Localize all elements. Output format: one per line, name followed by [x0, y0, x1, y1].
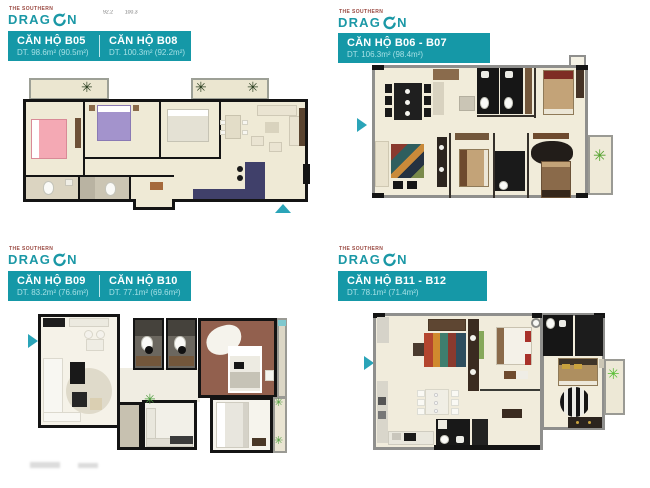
- chair: [96, 330, 105, 339]
- bench: [504, 371, 528, 379]
- plant-icon: ✳: [274, 398, 283, 409]
- wall: [303, 164, 310, 184]
- floor-plan-b06-b07: ✳: [371, 55, 614, 200]
- rug: [424, 333, 466, 367]
- appliance: [378, 411, 386, 419]
- dragon-o-icon: [52, 13, 66, 27]
- bench: [502, 409, 522, 418]
- plant-icon: ✳: [144, 392, 156, 406]
- wall: [477, 115, 535, 117]
- sofa: [428, 319, 466, 331]
- unit-name: CĂN HỘ B09: [17, 275, 99, 287]
- chair: [265, 370, 274, 381]
- brand-logo: THE SOUTHERN DRAG N: [338, 10, 408, 29]
- unit-band-b05-b08: CĂN HỘ B05 DT. 98.6m² (90.5m²) CĂN HỘ B0…: [8, 31, 191, 61]
- floor-plan-b11-b12: ✳: [372, 311, 626, 453]
- wall: [129, 177, 131, 199]
- toilet: [480, 97, 489, 109]
- pendant-light: [405, 100, 410, 105]
- unit-name: CĂN HỘ B05: [17, 35, 99, 47]
- stool: [237, 175, 243, 181]
- lamp: [470, 335, 476, 341]
- dining-chair: [424, 84, 431, 93]
- side-table: [393, 181, 403, 189]
- pendant-light: [434, 409, 438, 413]
- brand-word: DRAG N: [338, 253, 408, 266]
- toilet: [499, 181, 508, 190]
- sink: [559, 320, 566, 327]
- vanity: [169, 356, 194, 366]
- vanity: [136, 356, 161, 366]
- bed: [541, 161, 571, 198]
- plant-icon: ✳: [593, 149, 606, 165]
- mirror: [531, 318, 541, 328]
- unit-cell-b09: CĂN HỘ B09 DT. 83.2m² (76.6m²): [8, 271, 99, 301]
- balcony: [588, 135, 613, 195]
- kitchen-counter: [433, 82, 444, 115]
- pouf: [72, 392, 87, 407]
- dining-chair: [385, 96, 392, 105]
- bathroom: [575, 315, 603, 356]
- dining-chair: [242, 120, 248, 125]
- up-arrow-icon: [275, 204, 291, 213]
- shower: [168, 320, 195, 336]
- dragon-o-icon: [52, 253, 66, 267]
- appliance: [378, 397, 386, 405]
- armchair: [251, 136, 264, 146]
- pendant-light: [434, 401, 438, 405]
- cabinet: [69, 318, 109, 327]
- pillow: [562, 364, 570, 369]
- brand-logo: THE SOUTHERN DRAG N: [8, 247, 78, 266]
- nightstand: [133, 105, 139, 111]
- zebra-rug: [560, 387, 590, 417]
- pillow: [525, 354, 531, 365]
- dining-chair: [385, 108, 392, 117]
- pendant-light: [434, 393, 438, 397]
- kitchen-counter: [43, 318, 65, 327]
- bed: [558, 358, 598, 386]
- appliance: [170, 436, 193, 444]
- wall: [534, 68, 536, 118]
- unit-cell-b11-b12: CĂN HỘ B11 - B12 DT. 78.1m² (71.4m²): [338, 271, 487, 301]
- brand-word: DRAG N: [338, 16, 408, 29]
- toilet: [43, 181, 54, 195]
- dining-table: [225, 115, 241, 139]
- pillow: [574, 364, 582, 369]
- dining-chair: [242, 130, 248, 135]
- dining-chair: [451, 408, 459, 415]
- utility-room: [117, 402, 142, 450]
- plant-icon: ✳: [81, 80, 93, 94]
- rug: [391, 144, 424, 178]
- unit-area: DT. 78.1m² (71.4m²): [347, 288, 487, 297]
- unit-band-b11-b12: CĂN HỘ B11 - B12 DT. 78.1m² (71.4m²): [338, 271, 487, 301]
- handle: [576, 421, 579, 424]
- wall: [83, 102, 85, 176]
- unit-name: CĂN HỘ B11 - B12: [347, 275, 487, 287]
- unit-name: CĂN HỘ B08: [109, 35, 191, 47]
- tiny-dimension-note: 92.2100.3: [103, 10, 149, 15]
- pillow: [525, 331, 531, 342]
- dining-chair: [417, 390, 425, 397]
- armchair: [413, 343, 424, 356]
- dragon-o-icon: [382, 253, 396, 267]
- dragon-o-icon: [382, 16, 396, 30]
- pendant-light: [405, 89, 410, 94]
- nightstand: [599, 359, 604, 368]
- kitchen-island: [459, 96, 475, 111]
- bed: [97, 105, 131, 141]
- handle: [588, 421, 591, 424]
- wall: [372, 65, 384, 70]
- tiny-note-right: 100.3: [125, 10, 138, 15]
- brand-word-start: DRAG: [8, 13, 51, 26]
- unit-name: CĂN HỘ B06 - B07: [347, 37, 490, 49]
- balcony: [29, 78, 109, 100]
- nightstand: [89, 105, 95, 111]
- wardrobe: [455, 133, 489, 140]
- sofa: [43, 412, 81, 422]
- cooktop: [404, 433, 416, 441]
- brand-word-end: N: [67, 13, 78, 26]
- sink: [456, 436, 464, 443]
- bathroom: [472, 419, 488, 445]
- closet: [525, 68, 532, 114]
- stool: [178, 346, 186, 354]
- bed: [543, 70, 574, 115]
- dining-chair: [417, 408, 425, 415]
- unit-cell-b08: CĂN HỘ B08 DT. 100.3m² (92.2m²): [100, 31, 191, 61]
- unit-area: DT. 100.3m² (92.2m²): [109, 48, 191, 57]
- toilet: [440, 435, 449, 444]
- sink: [65, 179, 73, 186]
- plant-icon: ✳: [195, 80, 207, 94]
- dining-chair: [451, 399, 459, 406]
- wall: [449, 133, 451, 198]
- plant-icon: ✳: [274, 436, 283, 447]
- bed: [228, 346, 262, 393]
- entrance: [133, 199, 175, 210]
- pendant-light: [405, 111, 410, 116]
- pouf: [90, 398, 102, 410]
- chair: [84, 330, 93, 339]
- laptop: [234, 362, 244, 369]
- wall: [480, 389, 540, 391]
- floor-plan-b09-b10: ✳ ✳ ✳: [36, 312, 288, 458]
- dining-chair: [385, 84, 392, 93]
- right-arrow-icon: [357, 118, 367, 132]
- bed: [216, 402, 249, 448]
- unit-area: DT. 83.2m² (76.6m²): [17, 288, 99, 297]
- brand-word-end: N: [67, 253, 78, 266]
- kitchen-counter: [245, 162, 265, 191]
- brand-word: DRAG N: [8, 253, 78, 266]
- faint-note: [30, 462, 60, 468]
- coffee-table: [265, 122, 279, 133]
- side-table: [407, 181, 417, 189]
- dining-chair: [451, 390, 459, 397]
- lamp: [439, 167, 444, 172]
- bed: [31, 119, 67, 159]
- wardrobe: [568, 417, 602, 428]
- shoe-cabinet: [150, 182, 163, 190]
- lamp: [439, 145, 444, 150]
- unit-area: DT. 98.6m² (90.5m²): [17, 48, 99, 57]
- table: [86, 339, 104, 351]
- shelf: [479, 331, 484, 359]
- sink: [505, 71, 513, 78]
- tv-cabinet: [299, 108, 305, 146]
- kitchen-counter: [146, 408, 156, 442]
- unit-cell-b10: CĂN HỘ B10 DT. 77.1m² (69.6m²): [100, 271, 191, 301]
- tiny-note-left: 92.2: [103, 10, 113, 15]
- tv-wall: [468, 319, 479, 391]
- unit-band-b09-b10: CĂN HỘ B09 DT. 83.2m² (76.6m²) CĂN HỘ B1…: [8, 271, 191, 301]
- brand-logo: THE SOUTHERN DRAG N: [338, 247, 408, 266]
- unit-area: DT. 77.1m² (69.6m²): [109, 288, 191, 297]
- plant-icon: ✳: [247, 80, 259, 94]
- shower: [135, 320, 162, 336]
- sofa: [257, 105, 297, 116]
- wall: [372, 193, 384, 198]
- wall: [576, 193, 588, 198]
- stool: [145, 346, 153, 354]
- wall: [527, 133, 529, 198]
- wall: [159, 102, 161, 158]
- dining-chair: [424, 108, 431, 117]
- wall: [83, 157, 221, 159]
- kitchen-cabinet: [433, 69, 459, 80]
- dresser: [533, 133, 569, 139]
- coffee-table: [70, 362, 85, 384]
- plant-icon: ✳: [607, 367, 620, 382]
- wardrobe: [576, 70, 584, 98]
- ac-unit: [278, 320, 286, 326]
- wardrobe: [75, 118, 81, 148]
- sink: [481, 71, 489, 78]
- armchair: [269, 142, 282, 152]
- toilet: [546, 318, 555, 329]
- wall: [434, 445, 540, 450]
- door-swing: [438, 420, 447, 429]
- kitchen-counter: [193, 189, 265, 199]
- toilet: [105, 182, 116, 196]
- cabinet: [377, 317, 389, 343]
- brand-word-end: N: [397, 16, 408, 29]
- toilet: [504, 97, 513, 109]
- bench: [252, 438, 266, 446]
- unit-name: CĂN HỘ B10: [109, 275, 191, 287]
- bed: [459, 149, 489, 187]
- sofa: [43, 358, 63, 416]
- dining-chair: [424, 96, 431, 105]
- bed: [167, 109, 209, 142]
- shower: [80, 177, 95, 199]
- brand-logo: THE SOUTHERN DRAG N: [8, 7, 78, 26]
- sink: [392, 433, 401, 440]
- faint-note: [78, 463, 98, 468]
- balcony: [277, 318, 287, 398]
- corridor: [118, 368, 200, 402]
- unit-cell-b05: CĂN HỘ B05 DT. 98.6m² (90.5m²): [8, 31, 99, 61]
- brand-word-start: DRAG: [8, 253, 51, 266]
- brand-word: DRAG N: [8, 13, 78, 26]
- sofa: [375, 141, 389, 187]
- brand-word-start: DRAG: [338, 253, 381, 266]
- brand-word-end: N: [397, 253, 408, 266]
- dining-chair: [417, 399, 425, 406]
- lamp: [470, 369, 476, 375]
- brand-word-start: DRAG: [338, 16, 381, 29]
- floor-plan-b05-b08: ✳ ✳ ✳: [23, 78, 308, 210]
- stool: [237, 166, 243, 172]
